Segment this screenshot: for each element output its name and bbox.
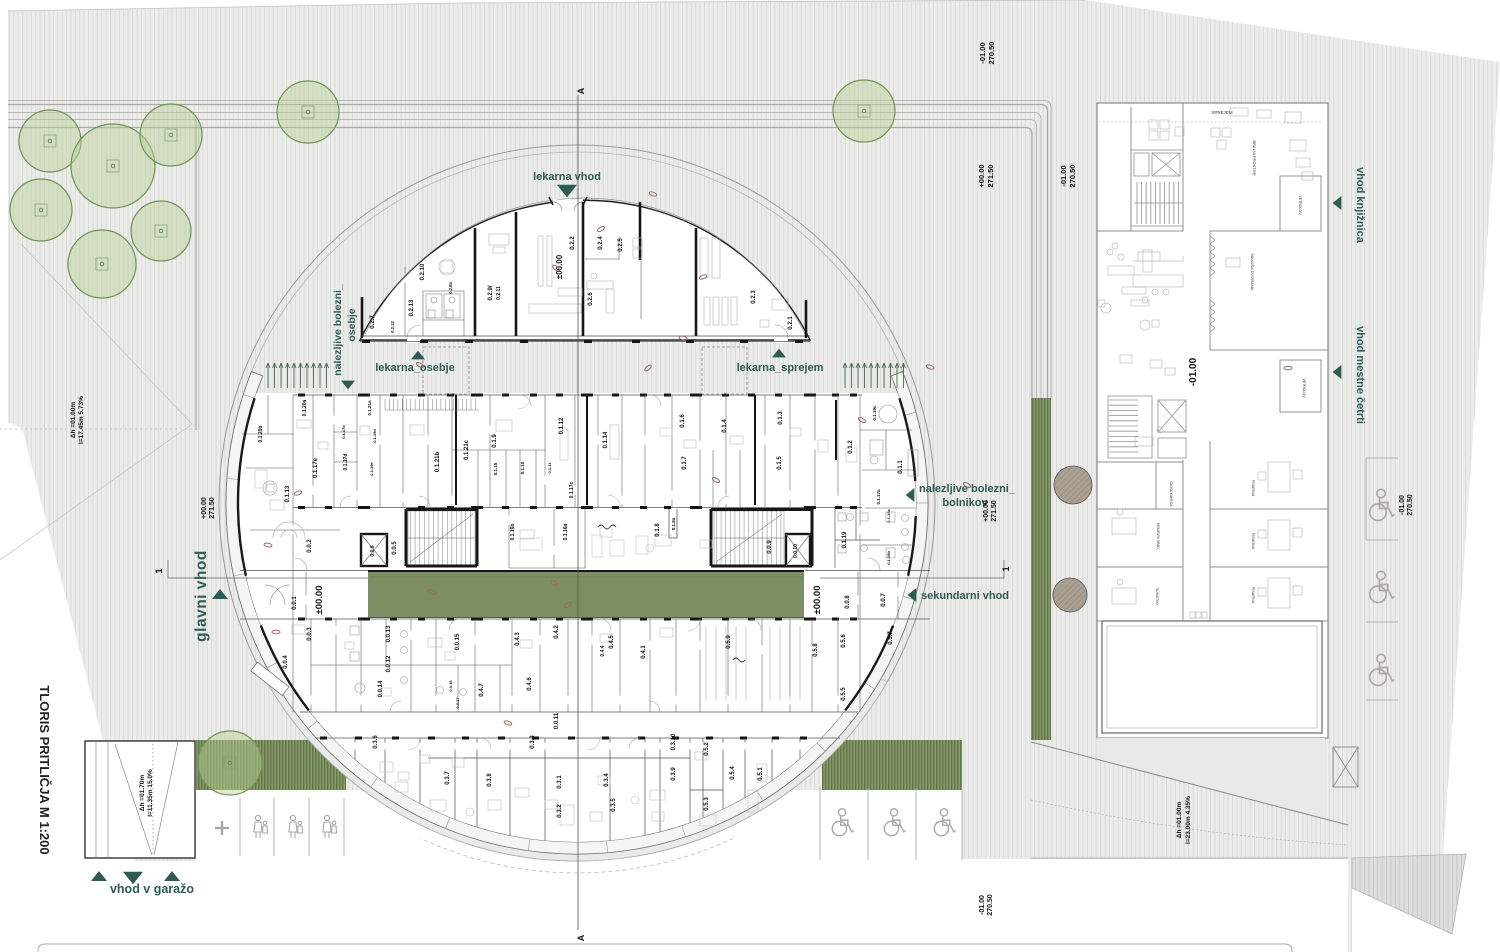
svg-text:vhod v garažo: vhod v garažo xyxy=(110,882,194,896)
svg-text:glavni vhod: glavni vhod xyxy=(193,550,210,642)
svg-text:+00.00: +00.00 xyxy=(201,497,208,519)
svg-text:Δh =01.70m: Δh =01.70m xyxy=(139,775,146,812)
svg-text:0.4.2: 0.4.2 xyxy=(554,625,560,639)
svg-text:PISARNA: PISARNA xyxy=(1251,587,1255,604)
svg-text:0.1.19: 0.1.19 xyxy=(842,531,848,548)
svg-text:0.0.15: 0.0.15 xyxy=(455,633,461,650)
svg-text:0.1.17a: 0.1.17a xyxy=(876,489,881,505)
svg-text:0.0.13: 0.0.13 xyxy=(386,625,392,642)
svg-text:0.1.21b: 0.1.21b xyxy=(435,451,441,472)
svg-text:0.1.6: 0.1.6 xyxy=(680,414,686,428)
svg-text:0.2.12: 0.2.12 xyxy=(390,321,395,333)
svg-text:A: A xyxy=(576,87,586,94)
svg-text:0.4.7: 0.4.7 xyxy=(479,683,485,697)
svg-text:0.0.8: 0.0.8 xyxy=(845,595,851,609)
svg-text:0.5.8: 0.5.8 xyxy=(813,643,819,657)
svg-text:0.1.9: 0.1.9 xyxy=(492,434,498,448)
svg-text:0.1.7: 0.1.7 xyxy=(682,456,688,470)
svg-text:0.1.17b: 0.1.17b xyxy=(341,425,346,439)
svg-text:0.4.6: 0.4.6 xyxy=(527,677,533,691)
svg-text:nalezljive bolezni_: nalezljive bolezni_ xyxy=(332,284,344,376)
svg-text:0.2.11: 0.2.11 xyxy=(496,286,502,300)
svg-text:A: A xyxy=(576,934,586,941)
svg-text:270.50: 270.50 xyxy=(987,42,996,65)
svg-text:0.3.9: 0.3.9 xyxy=(671,767,677,781)
svg-text:0.3.10: 0.3.10 xyxy=(671,733,677,750)
svg-text:0.0.17: 0.0.17 xyxy=(455,697,460,709)
svg-text:+00.00: +00.00 xyxy=(983,500,990,522)
svg-text:0.1.20b: 0.1.20b xyxy=(258,426,264,443)
svg-text:TLORIS PRITLIČJA M 1:200: TLORIS PRITLIČJA M 1:200 xyxy=(37,685,52,854)
svg-text:-01.00: -01.00 xyxy=(979,895,986,915)
svg-text:lekarna vhod: lekarna vhod xyxy=(533,171,601,183)
svg-text:MANJŠA DVORANA: MANJŠA DVORANA xyxy=(1250,254,1255,291)
svg-text:bolnikov: bolnikov xyxy=(942,497,988,509)
svg-text:0.0.1: 0.0.1 xyxy=(292,596,298,610)
svg-text:0.1.11: 0.1.11 xyxy=(547,462,552,474)
svg-text:0.2.5: 0.2.5 xyxy=(618,238,624,252)
svg-text:±00.00: ±00.00 xyxy=(314,586,325,615)
svg-text:0.3.8: 0.3.8 xyxy=(487,773,493,787)
svg-text:0.0.7: 0.0.7 xyxy=(881,593,887,607)
svg-text:0.2.3: 0.2.3 xyxy=(751,290,757,304)
svg-text:0.0.16: 0.0.16 xyxy=(448,680,453,692)
svg-text:0.2.8a: 0.2.8a xyxy=(448,282,453,294)
svg-text:lekarna_sprejem: lekarna_sprejem xyxy=(737,362,824,374)
svg-text:0.1.5: 0.1.5 xyxy=(777,456,783,470)
svg-text:0.5.1: 0.5.1 xyxy=(758,767,764,781)
svg-text:0.0.9: 0.0.9 xyxy=(767,540,773,554)
svg-text:0.2.13: 0.2.13 xyxy=(409,299,415,316)
svg-text:270.50: 270.50 xyxy=(1068,165,1077,188)
svg-text:0.1.16b: 0.1.16b xyxy=(510,524,516,541)
svg-text:0.1.16a: 0.1.16a xyxy=(563,523,569,540)
svg-text:0.1.17e: 0.1.17e xyxy=(313,457,319,478)
svg-text:nalezljive bolezni_: nalezljive bolezni_ xyxy=(919,483,1016,495)
svg-text:0.3.1: 0.3.1 xyxy=(557,775,563,789)
svg-text:271.50: 271.50 xyxy=(209,497,216,519)
svg-text:0.1.10: 0.1.10 xyxy=(520,461,525,474)
svg-text:0.1.15: 0.1.15 xyxy=(493,462,498,475)
svg-text:VETROLOV: VETROLOV xyxy=(1298,195,1302,215)
svg-text:0.3.6: 0.3.6 xyxy=(373,735,379,749)
svg-text:-01.00: -01.00 xyxy=(1059,165,1068,186)
svg-text:0.2.1: 0.2.1 xyxy=(788,316,794,330)
svg-text:+00.00: +00.00 xyxy=(977,164,986,187)
svg-text:0.0.12: 0.0.12 xyxy=(386,655,392,672)
svg-text:-01.00: -01.00 xyxy=(978,42,987,63)
svg-text:0.2.7: 0.2.7 xyxy=(370,315,376,329)
svg-text:0.2.2: 0.2.2 xyxy=(570,236,576,250)
svg-text:sekundarni vhod: sekundarni vhod xyxy=(921,590,1009,602)
svg-text:0.0.6: 0.0.6 xyxy=(370,545,376,556)
svg-text:270.50: 270.50 xyxy=(1407,494,1414,516)
svg-text:0.0.14: 0.0.14 xyxy=(378,680,384,697)
svg-text:0.1.21a: 0.1.21a xyxy=(367,400,372,416)
svg-text:0.0.5: 0.0.5 xyxy=(392,541,398,555)
svg-text:ČAJNA KUHINJA: ČAJNA KUHINJA xyxy=(1169,482,1174,508)
svg-text:-01.00: -01.00 xyxy=(1188,357,1199,386)
svg-text:0.2.10: 0.2.10 xyxy=(420,263,426,280)
svg-text:0.2.6: 0.2.6 xyxy=(588,292,594,306)
svg-text:0.1.19c: 0.1.19c xyxy=(872,405,877,421)
svg-text:270.50: 270.50 xyxy=(987,894,994,916)
svg-text:BRALNI PROSTOR: BRALNI PROSTOR xyxy=(1252,140,1257,175)
svg-text:0.5.6: 0.5.6 xyxy=(841,634,847,648)
svg-text:0.1.8: 0.1.8 xyxy=(655,523,661,537)
svg-text:0.3.4: 0.3.4 xyxy=(604,773,610,787)
svg-text:0.0.2: 0.0.2 xyxy=(307,539,313,553)
svg-text:TAJNIŠTVO: TAJNIŠTVO xyxy=(1155,587,1160,605)
svg-text:±00.00: ±00.00 xyxy=(555,254,564,279)
svg-text:0.1.2: 0.1.2 xyxy=(848,440,854,454)
svg-text:0.4.3: 0.4.3 xyxy=(515,632,521,646)
svg-text:0.1.20a: 0.1.20a xyxy=(302,399,308,416)
svg-text:0.0.3: 0.0.3 xyxy=(307,627,313,641)
svg-text:0.5.7: 0.5.7 xyxy=(888,631,894,645)
svg-text:0.0.10: 0.0.10 xyxy=(793,544,799,558)
svg-text:l=11.35m 15.0%: l=11.35m 15.0% xyxy=(147,769,154,817)
svg-text:0.0.4: 0.0.4 xyxy=(283,655,289,669)
svg-text:KRAJEVNI URAD: KRAJEVNI URAD xyxy=(1156,523,1160,549)
svg-text:0.1.14: 0.1.14 xyxy=(603,431,609,448)
svg-text:0.1.4: 0.1.4 xyxy=(722,419,728,433)
svg-text:0.1.8a: 0.1.8a xyxy=(671,517,676,530)
svg-text:0.5.2: 0.5.2 xyxy=(704,742,710,756)
svg-text:1: 1 xyxy=(154,568,164,573)
svg-text:±00.00: ±00.00 xyxy=(812,586,823,615)
svg-text:0.1.1: 0.1.1 xyxy=(898,460,904,474)
svg-text:0.1.19a: 0.1.19a xyxy=(886,509,891,523)
svg-text:271.50: 271.50 xyxy=(986,165,995,188)
svg-text:osebje: osebje xyxy=(346,308,358,341)
svg-text:0.4.4: 0.4.4 xyxy=(600,645,606,656)
svg-text:271.50: 271.50 xyxy=(991,500,998,522)
svg-text:0.3.2: 0.3.2 xyxy=(557,804,563,818)
svg-text:VETROLOV: VETROLOV xyxy=(1302,378,1306,398)
svg-text:vhod mestne četrti: vhod mestne četrti xyxy=(1354,326,1366,424)
svg-text:0.5.5: 0.5.5 xyxy=(841,687,847,701)
svg-text:0.4.5: 0.4.5 xyxy=(609,635,615,649)
svg-text:0.5.3: 0.5.3 xyxy=(704,797,710,811)
svg-text:0.1.12: 0.1.12 xyxy=(559,417,565,434)
svg-text:Δh =01.00m: Δh =01.00m xyxy=(70,402,77,439)
svg-text:l=23.00m 4.35%: l=23.00m 4.35% xyxy=(1185,796,1192,844)
svg-text:0.1.17c: 0.1.17c xyxy=(569,481,575,498)
svg-text:PISARNA: PISARNA xyxy=(1251,480,1255,497)
svg-text:0.1.19d: 0.1.19d xyxy=(372,429,377,443)
svg-text:-01.00: -01.00 xyxy=(1399,495,1406,515)
svg-text:0.1.13: 0.1.13 xyxy=(285,485,291,502)
svg-text:0.2.4: 0.2.4 xyxy=(598,236,604,250)
svg-text:1: 1 xyxy=(1001,566,1011,571)
svg-text:PISARNA: PISARNA xyxy=(1251,533,1255,550)
svg-text:0.3.5: 0.3.5 xyxy=(611,798,617,812)
svg-text:vhod knjižnica: vhod knjižnica xyxy=(1354,167,1366,244)
svg-text:lekarna_osebje: lekarna_osebje xyxy=(375,362,455,374)
svg-text:0.1.19e: 0.1.19e xyxy=(369,462,374,476)
svg-text:0.3.3: 0.3.3 xyxy=(530,735,536,749)
svg-text:Δh =01.00m: Δh =01.00m xyxy=(1176,802,1183,839)
svg-text:0.5.4: 0.5.4 xyxy=(730,766,736,780)
svg-text:l=17.45m 5.73%: l=17.45m 5.73% xyxy=(78,396,85,444)
svg-text:0.3.7: 0.3.7 xyxy=(445,771,451,785)
svg-text:0.1.17d: 0.1.17d xyxy=(343,454,349,471)
svg-text:0.1.21c: 0.1.21c xyxy=(464,439,470,460)
svg-text:0.1.3: 0.1.3 xyxy=(778,411,784,425)
svg-text:0.5.9: 0.5.9 xyxy=(726,635,732,649)
svg-text:SPREJEM: SPREJEM xyxy=(1211,110,1233,115)
svg-text:0.4.1: 0.4.1 xyxy=(641,645,647,659)
svg-text:0.0.11: 0.0.11 xyxy=(554,712,560,729)
svg-text:0.2.9/: 0.2.9/ xyxy=(488,285,494,300)
